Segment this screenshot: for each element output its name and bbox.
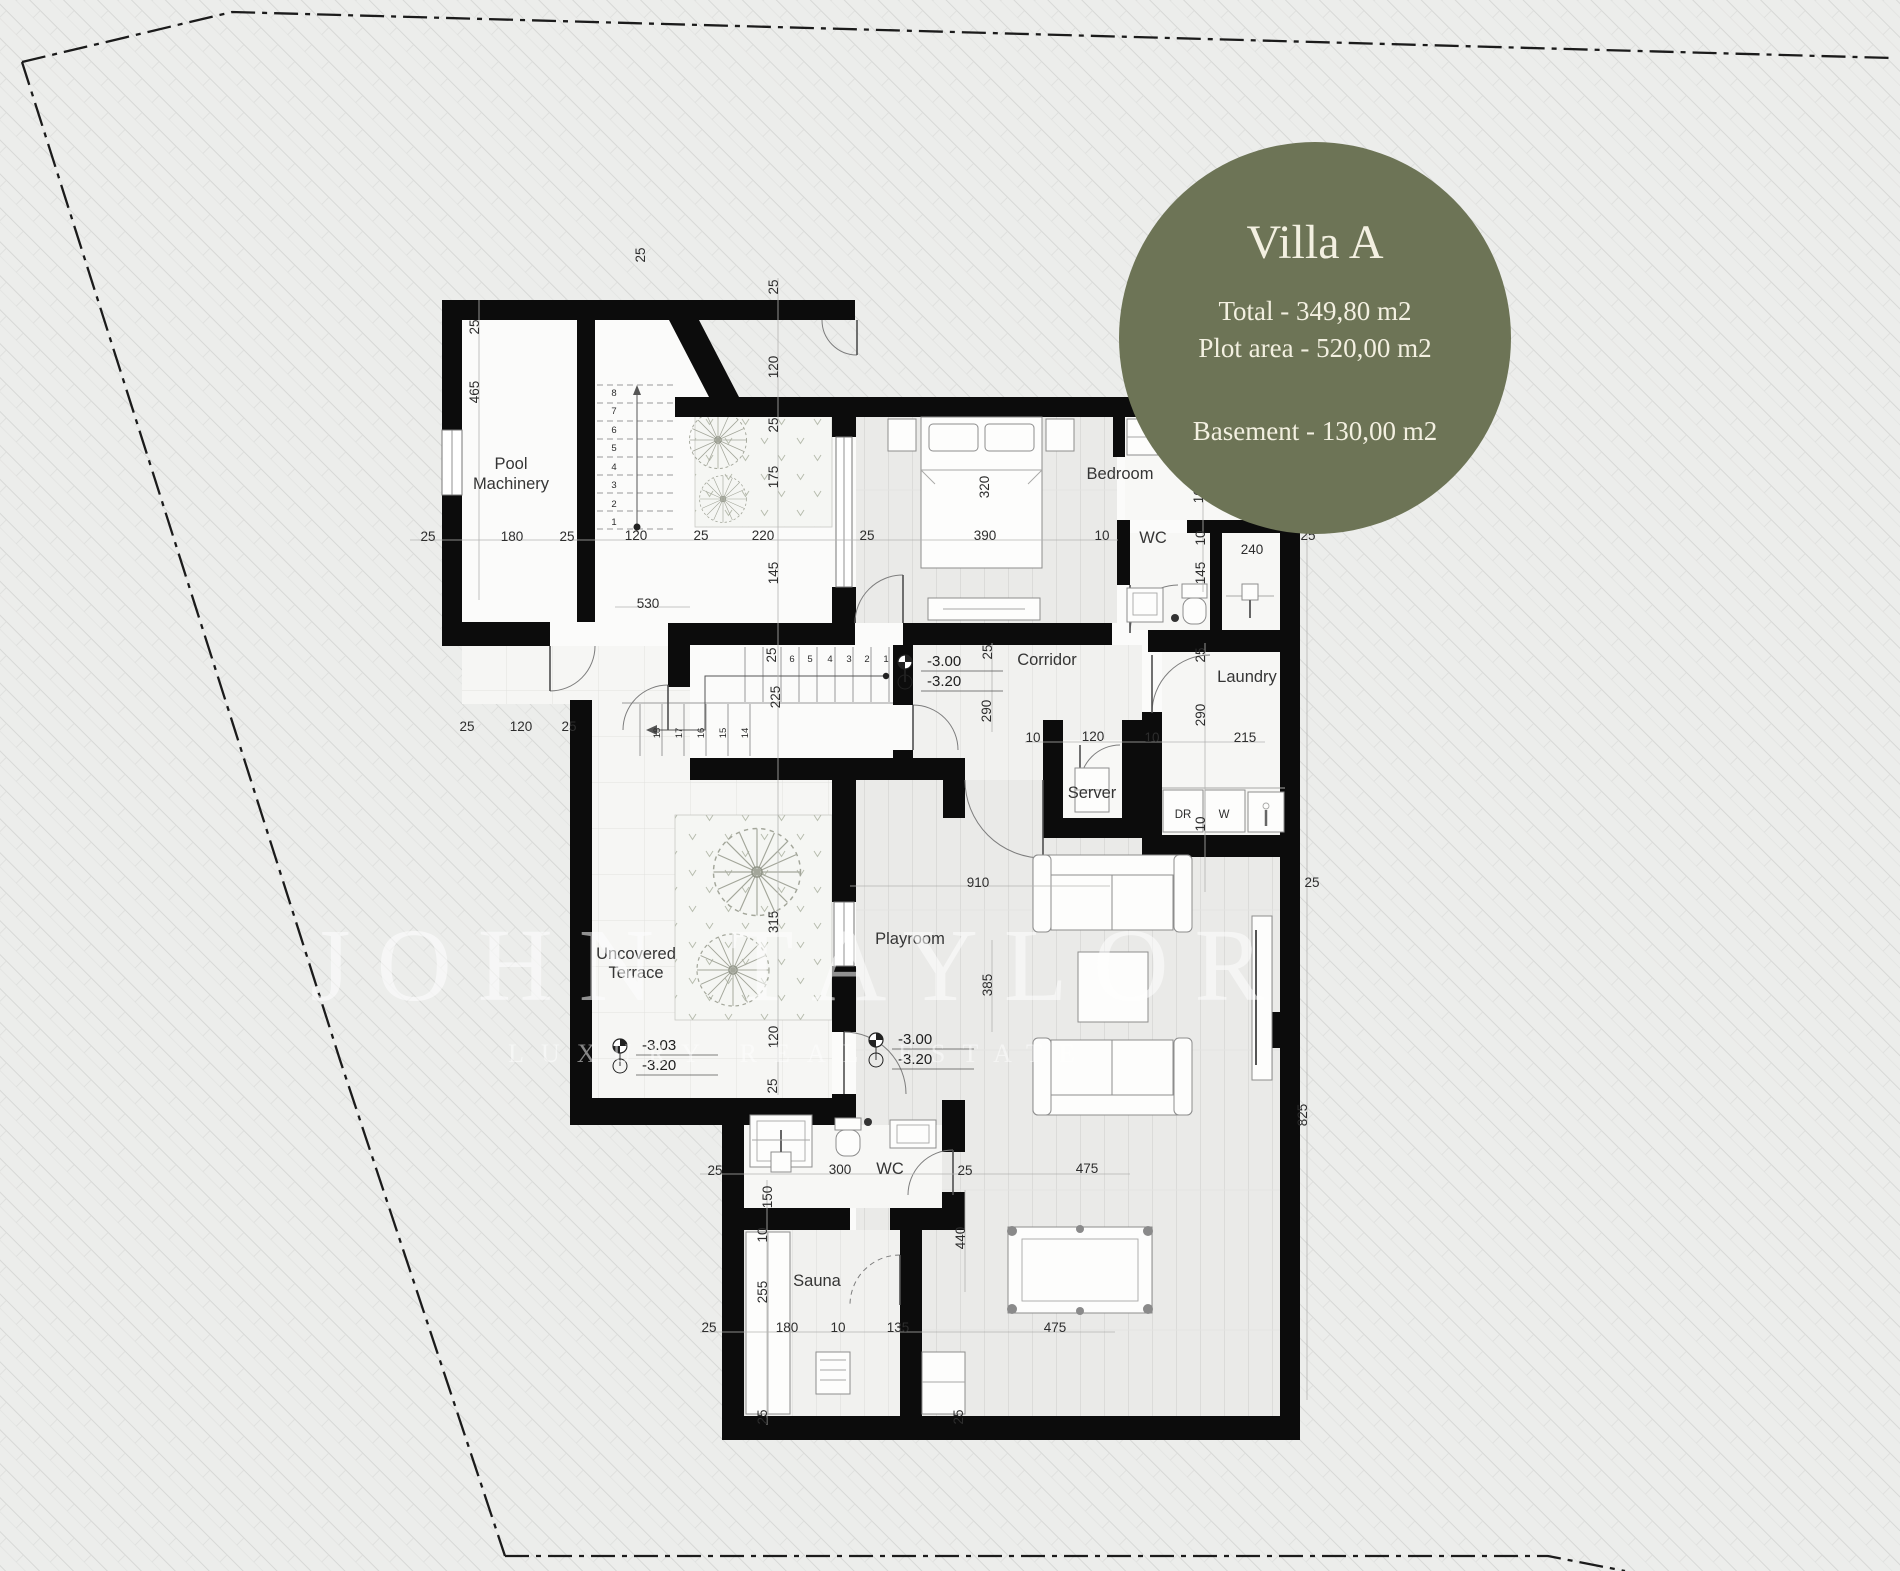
dimension-label: 25	[766, 279, 781, 294]
dimension-label: 25	[957, 1163, 972, 1178]
stair-step-number: 4	[827, 654, 832, 665]
stair-step-number: 8	[611, 388, 616, 399]
dimension-label: 10	[1193, 816, 1208, 831]
dimension-label: 475	[1076, 1161, 1099, 1176]
dimension-label: 10	[1025, 730, 1040, 745]
dimension-label: 25	[765, 1078, 780, 1093]
dimension-label: 390	[974, 528, 997, 543]
dimension-label: 25	[766, 417, 781, 432]
tv-console	[928, 598, 1040, 620]
dimension-label: 440	[953, 1227, 968, 1250]
stair-step-number: 6	[611, 425, 616, 436]
sink	[890, 1120, 936, 1148]
dimension-label: 25	[420, 529, 435, 544]
dimension-label: 145	[766, 562, 781, 585]
floor-plan-page: PoolMachineryBedroomWCCorridorLaundrySer…	[0, 0, 1900, 1571]
dimension-label: 25	[467, 319, 482, 334]
stair-step-number: 14	[740, 728, 751, 739]
dimension-label: 215	[1234, 730, 1257, 745]
dimension-label: 25	[707, 1163, 722, 1178]
room-label: WC	[1139, 529, 1167, 547]
dimension-label: 25	[764, 647, 779, 662]
stair-step-number: 3	[846, 654, 851, 665]
dimension-label: 120	[766, 356, 781, 379]
stair-step-number: 7	[611, 406, 616, 417]
dimension-label: 25	[951, 1409, 966, 1424]
dimension-label: 180	[776, 1320, 799, 1335]
dimension-label: 320	[977, 476, 992, 499]
dimension-label: 10	[755, 1227, 770, 1242]
dimension-label: 25	[859, 528, 874, 543]
room-label: Laundry	[1217, 668, 1277, 686]
dimension-label: 25	[701, 1320, 716, 1335]
stair-step-number: 5	[807, 654, 812, 665]
pool-table	[1007, 1225, 1153, 1315]
dimension-label: 120	[625, 528, 648, 543]
stair-step-number: 3	[611, 480, 616, 491]
dimension-label: 25	[1193, 647, 1208, 662]
badge-title: Villa A	[1246, 216, 1383, 269]
dimension-label: 530	[637, 596, 660, 611]
dimension-label: 180	[501, 529, 524, 544]
dimension-label: 25	[980, 644, 995, 659]
dimension-label: 10	[1094, 528, 1109, 543]
dimension-label: 120	[510, 719, 533, 734]
floor-plan-canvas: PoolMachineryBedroomWCCorridorLaundrySer…	[0, 0, 1900, 1571]
stair-step-number: 18	[652, 728, 663, 739]
window	[442, 430, 462, 495]
dimension-label: 10	[830, 1320, 845, 1335]
stair-step-number: 5	[611, 443, 616, 454]
room-label: Sauna	[793, 1272, 842, 1290]
dimension-label: 25	[633, 247, 648, 262]
dimension-label: 150	[760, 1186, 775, 1209]
room-label: Corridor	[1017, 651, 1077, 669]
dimension-label: 220	[752, 528, 775, 543]
dimension-label: 25	[1304, 875, 1319, 890]
dimension-label: 825	[1295, 1104, 1310, 1127]
dimension-label: 10	[1193, 530, 1208, 545]
dimension-label: 25	[459, 719, 474, 734]
dimension-label: 300	[829, 1162, 852, 1177]
dimension-label: 25	[755, 1409, 770, 1424]
room-label: Machinery	[473, 475, 550, 493]
dimension-label: 25	[559, 529, 574, 544]
stair-step-number: 2	[611, 499, 616, 510]
dimension-label: 25	[693, 528, 708, 543]
dimension-label: DR	[1175, 809, 1192, 821]
dimension-label: 175	[766, 466, 781, 489]
watermark-brand: JOHN TAYLOR	[310, 908, 1290, 1023]
dimension-label: 290	[1193, 704, 1208, 727]
sink	[1127, 588, 1163, 622]
dimension-label: 240	[1241, 542, 1264, 557]
badge-total-area: Total - 349,80 m2	[1218, 296, 1411, 326]
dimension-label: 145	[1193, 562, 1208, 585]
dimension-label: 135	[887, 1320, 910, 1335]
dimension-label: 225	[768, 686, 783, 709]
room-label: Pool	[494, 455, 527, 473]
dimension-label: 290	[979, 700, 994, 723]
dimension-label: 475	[1044, 1320, 1067, 1335]
stair-step-number: 17	[674, 728, 685, 739]
elevation-value: -3.20	[927, 673, 961, 690]
stair-step-number: 1	[611, 517, 616, 528]
shower	[750, 1115, 812, 1172]
stair-step-number: 6	[789, 654, 794, 665]
storage-niche	[922, 1352, 965, 1414]
stair-step-number: 4	[611, 462, 616, 473]
dimension-label: 25	[561, 719, 576, 734]
dimension-label: W	[1219, 809, 1230, 821]
stair-step-number: 16	[696, 728, 707, 739]
dimension-label: 120	[1082, 729, 1105, 744]
dimension-label: 465	[467, 381, 482, 404]
dimension-label: 910	[967, 875, 990, 890]
elevation-value: -3.00	[927, 653, 961, 670]
dimension-label: 10	[1144, 730, 1159, 745]
room-label: Bedroom	[1087, 465, 1154, 483]
stair-step-number: 1	[883, 654, 888, 665]
villa-info-badge: Villa A Total - 349,80 m2 Plot area - 52…	[1119, 142, 1511, 534]
watermark-tagline: LUXURY REAL ESTATE	[508, 1039, 1092, 1068]
badge-basement-area: Basement - 130,00 m2	[1193, 416, 1437, 446]
stair-step-number: 2	[864, 654, 869, 665]
badge-plot-area: Plot area - 520,00 m2	[1198, 333, 1431, 363]
dimension-label: 255	[755, 1281, 770, 1304]
room-label: Server	[1068, 784, 1117, 802]
window	[836, 437, 852, 587]
stair-step-number: 15	[718, 728, 729, 739]
room-label: WC	[876, 1160, 904, 1178]
